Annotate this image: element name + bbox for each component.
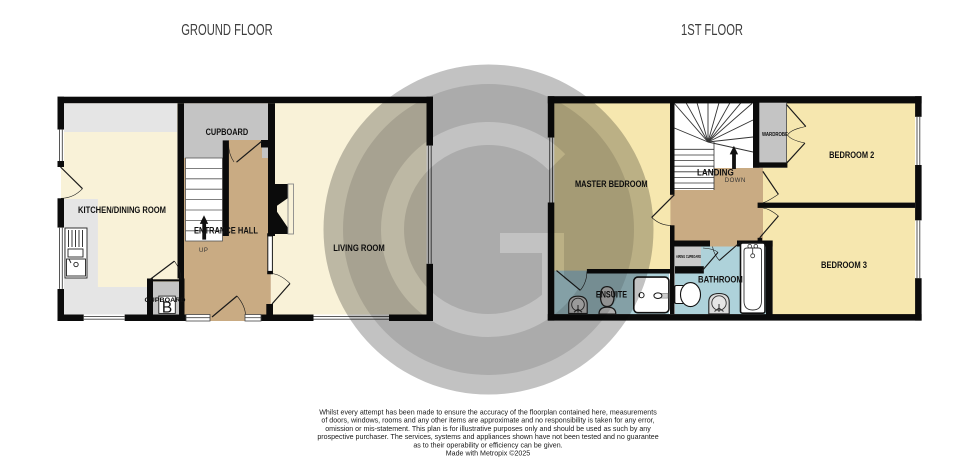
svg-text:as to their operability or eff: as to their operability or efficiency ca… [413,441,562,449]
svg-text:Made with Metropix ©2025: Made with Metropix ©2025 [446,450,531,457]
svg-text:Whilst every attempt has been: Whilst every attempt has been made to en… [319,409,657,417]
svg-text:KITCHEN/DINING ROOM: KITCHEN/DINING ROOM [78,205,166,215]
svg-text:ENTRANCE HALL: ENTRANCE HALL [194,226,258,236]
svg-text:BEDROOM 3: BEDROOM 3 [821,260,867,270]
svg-text:AIRING CUPBOARD: AIRING CUPBOARD [676,254,701,259]
svg-text:of doors, windows, rooms and a: of doors, windows, rooms and any other i… [321,417,654,425]
svg-text:1ST FLOOR: 1ST FLOOR [681,22,743,39]
svg-text:WARDROBE: WARDROBE [762,132,788,138]
svg-text:BATHROOM: BATHROOM [698,275,743,285]
svg-text:CUPBOARD: CUPBOARD [206,127,249,137]
svg-text:CUPBOARD: CUPBOARD [145,298,187,304]
svg-text:DOWN: DOWN [725,178,746,184]
svg-text:BEDROOM 2: BEDROOM 2 [829,150,874,160]
svg-text:prospective purchaser. The ser: prospective purchaser. The services, sys… [317,433,658,441]
svg-text:LANDING: LANDING [697,168,734,178]
svg-text:UP: UP [199,248,208,254]
svg-text:GROUND FLOOR: GROUND FLOOR [181,22,273,39]
svg-text:omission or mis-statement. Thi: omission or mis-statement. This plan is … [325,425,651,433]
